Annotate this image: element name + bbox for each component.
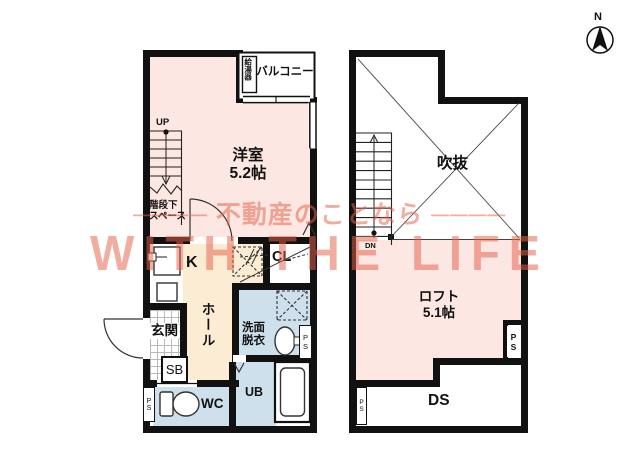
bathtub — [275, 362, 310, 422]
pipe-space-right-2f-label: PS — [509, 332, 519, 352]
kitchen-label: K — [186, 254, 198, 272]
duct-space-label: DS — [428, 392, 450, 410]
loft-name: ロフト — [407, 289, 471, 305]
unit-bath-label: UB — [245, 385, 263, 399]
floor2-walls — [349, 50, 528, 433]
pipe-space-left-1f-label: PS — [146, 398, 153, 412]
hall-label: ホール — [199, 302, 215, 380]
pipe-space-right-1f: PS — [299, 325, 312, 359]
closet-label: CL — [272, 249, 291, 266]
western-room-name: 洋室 — [198, 147, 298, 165]
pipe-space-left-1f: PS — [143, 387, 155, 422]
wash-basin — [275, 327, 302, 355]
kitchen-counter — [148, 247, 180, 301]
stairs-up-label: UP — [156, 118, 169, 129]
washing-machine-space — [277, 291, 307, 320]
stairs-2f — [356, 133, 392, 245]
entrance-door-arc — [104, 319, 143, 358]
water-heater-label: 給湯器 — [243, 58, 252, 92]
void-label: 吹抜 — [437, 155, 468, 173]
pipe-space-right-2f: PS — [507, 326, 520, 357]
loft-size: 5.1帖 — [407, 305, 471, 321]
loft-label: ロフト 5.1帖 — [407, 289, 471, 320]
washroom-label: 洗面 脱衣 — [242, 322, 265, 348]
western-room-label: 洋室 5.2帖 — [198, 147, 298, 183]
shoe-box-label: SB — [166, 362, 183, 377]
stairs-down-label: DN — [365, 242, 376, 251]
compass-icon — [587, 26, 613, 53]
shoe-box: SB — [161, 356, 188, 383]
toilet-fixture — [160, 392, 199, 416]
pipe-space-left-2f: PS — [356, 387, 367, 425]
western-room-size: 5.2帖 — [198, 165, 298, 183]
pipe-space-right-1f-label: PS — [301, 333, 310, 351]
western-room-window — [309, 103, 319, 149]
toilet-label: WC — [201, 396, 224, 412]
compass-north-label: N — [594, 11, 602, 24]
washroom-line2: 脱衣 — [242, 335, 265, 348]
balcony-label: バルコニー — [250, 66, 320, 79]
door-arc-western-room — [190, 199, 232, 241]
pipe-space-left-2f-label: PS — [358, 399, 365, 413]
entrance-label: 玄関 — [150, 323, 179, 339]
under-stairs-label: 階段下 スペース — [149, 201, 186, 223]
under-stairs-line2: スペース — [149, 212, 186, 223]
washroom-line1: 洗面 — [242, 322, 265, 335]
floor-plan-canvas: SB PS PS PS PS バルコニー 給湯器 洋室 5.2帖 UP 階段下 … — [0, 0, 639, 469]
